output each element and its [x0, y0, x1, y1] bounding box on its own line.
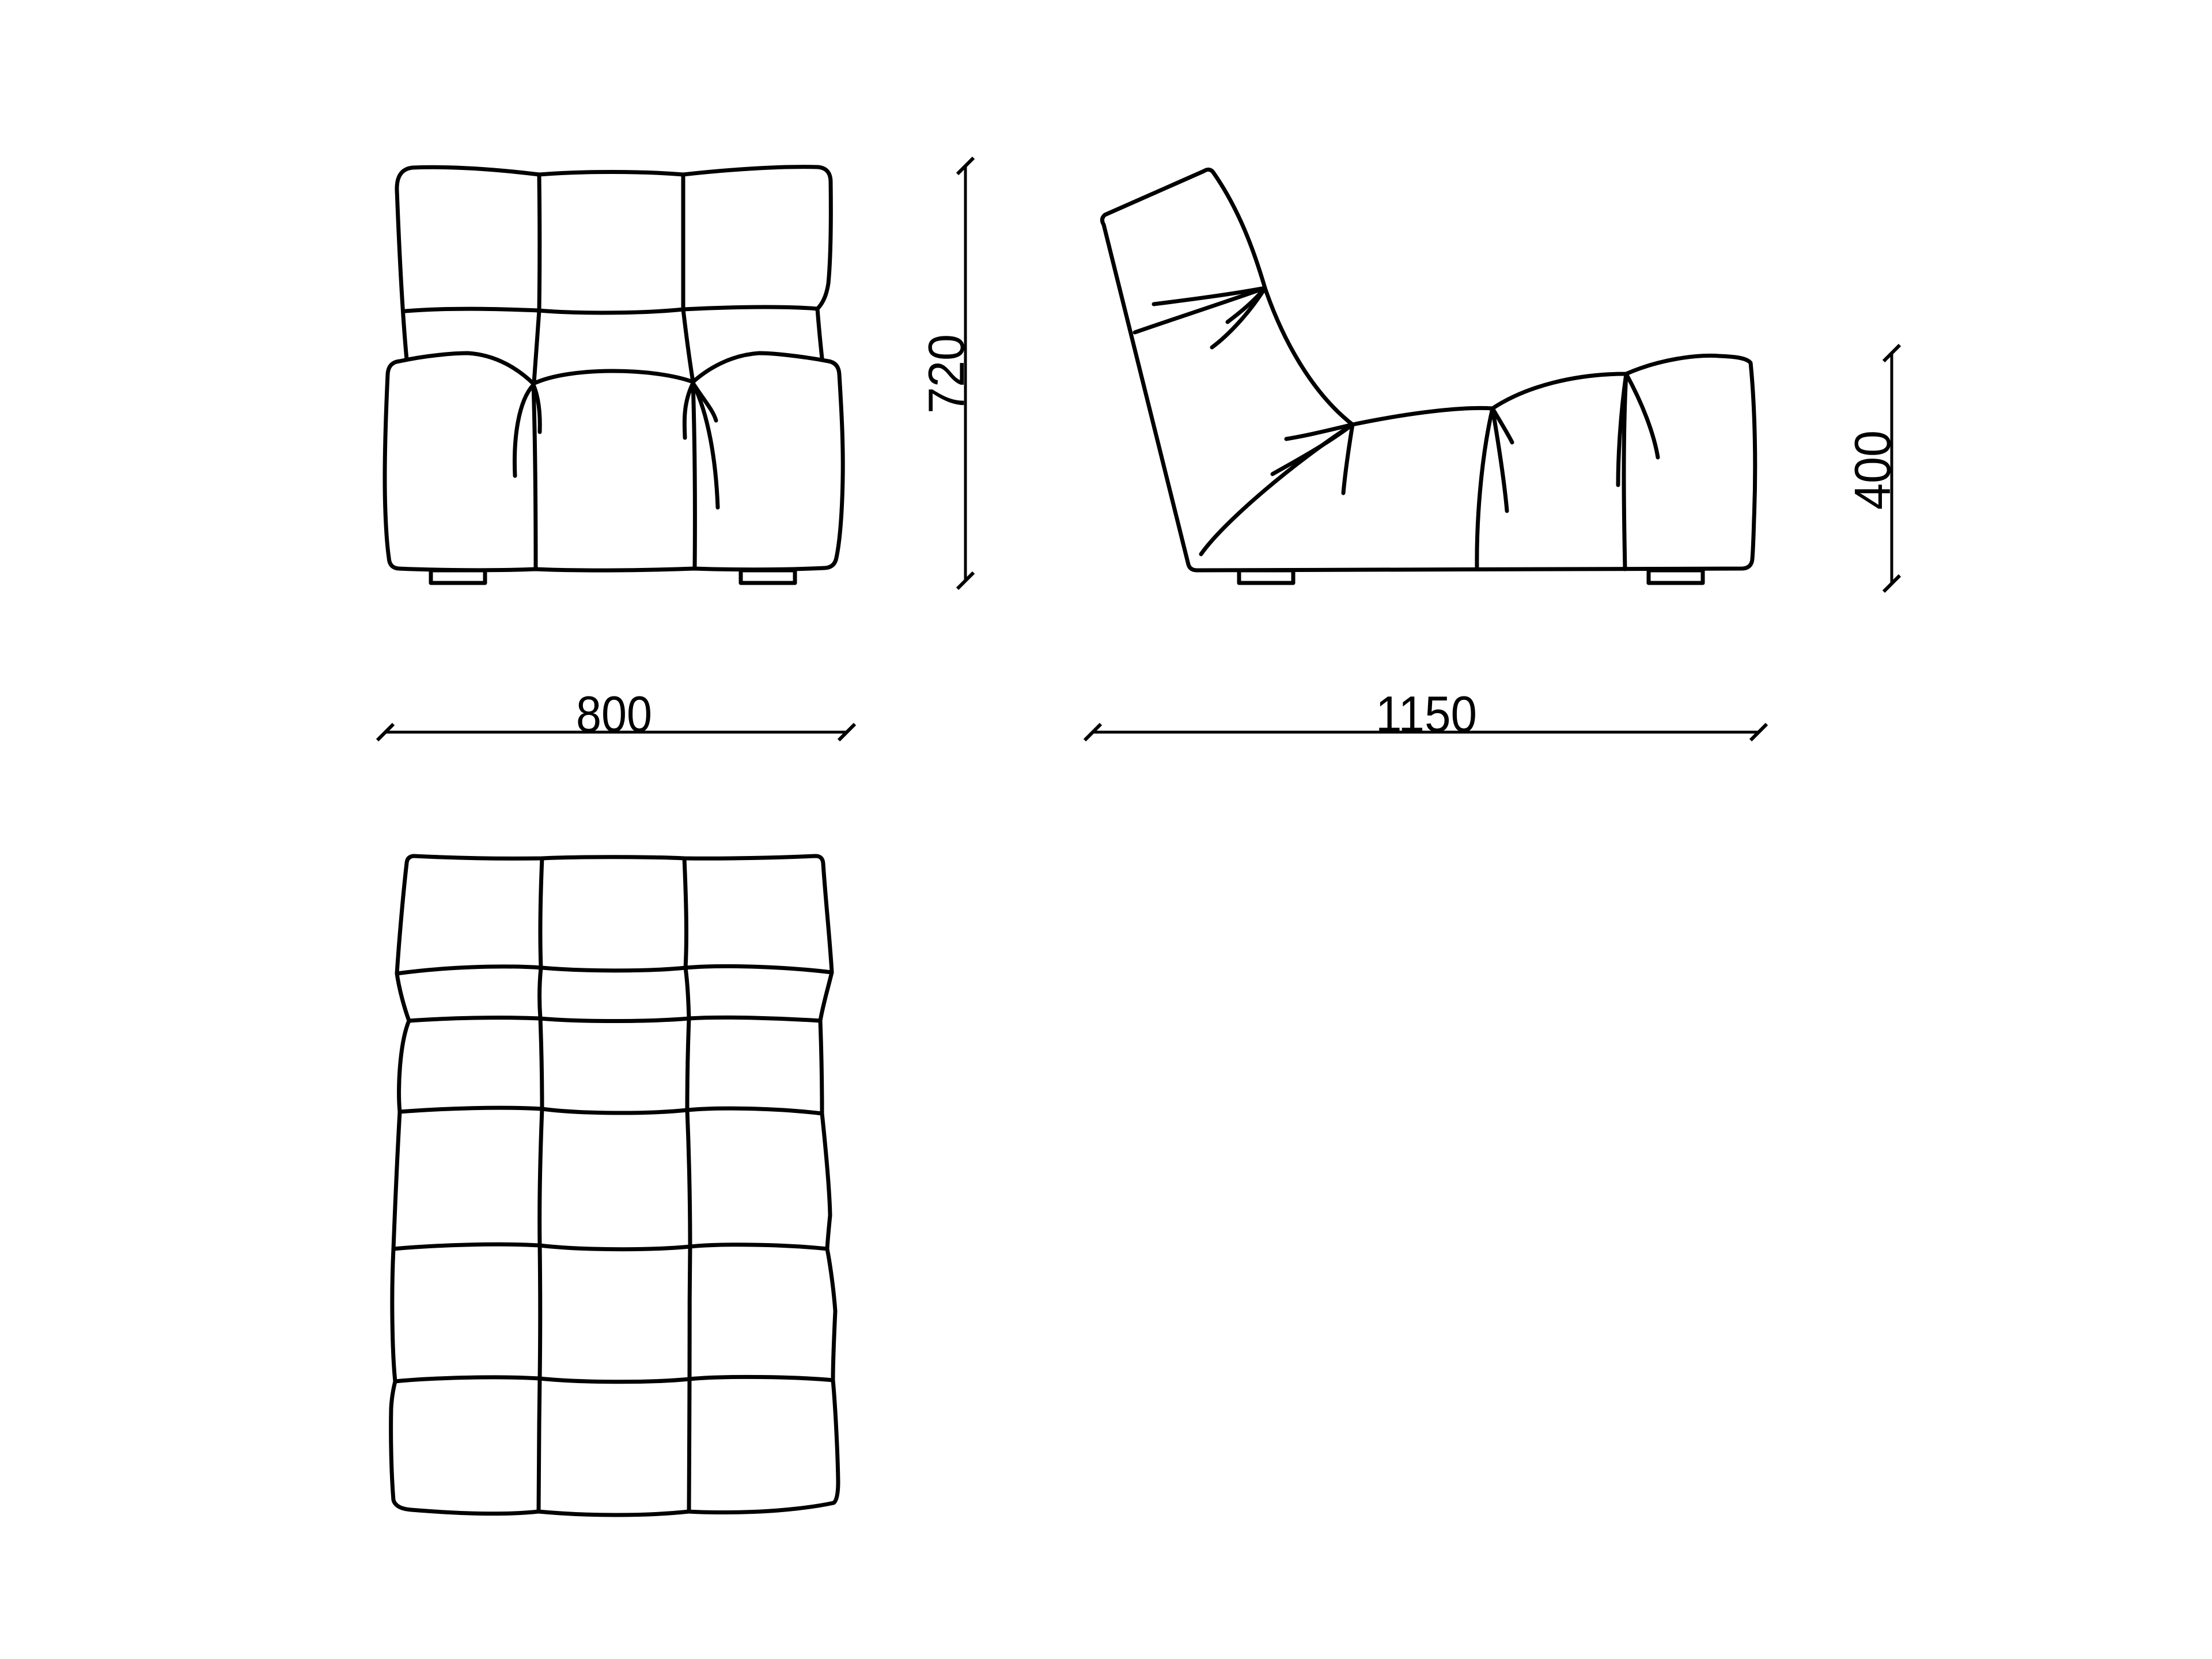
svg-text:720: 720 — [918, 334, 975, 414]
svg-text:800: 800 — [576, 685, 652, 743]
svg-text:400: 400 — [1844, 430, 1901, 510]
svg-text:1150: 1150 — [1376, 685, 1477, 743]
